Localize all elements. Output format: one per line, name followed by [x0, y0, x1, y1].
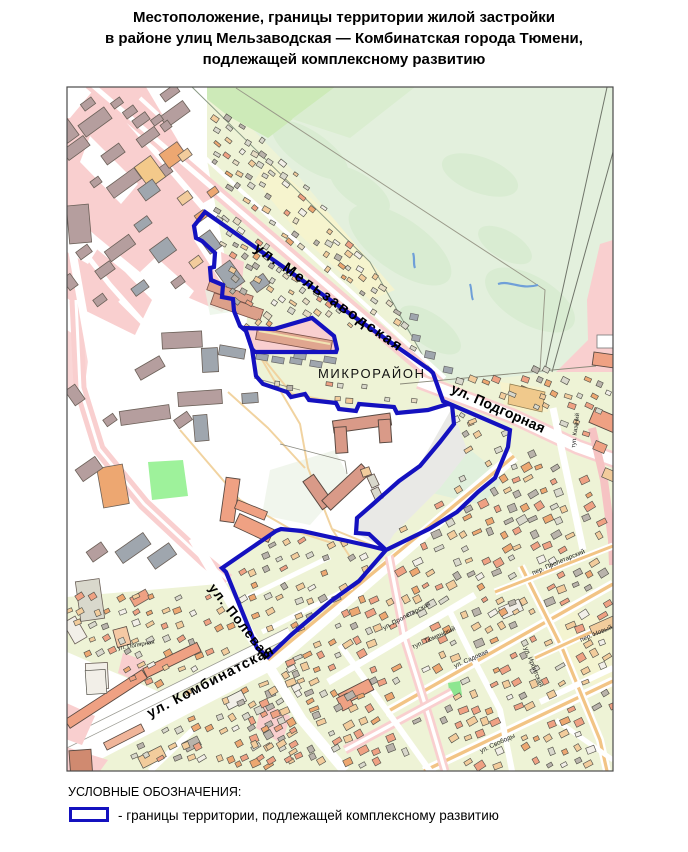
svg-text:МИКРОРАЙОН: МИКРОРАЙОН [318, 366, 426, 381]
